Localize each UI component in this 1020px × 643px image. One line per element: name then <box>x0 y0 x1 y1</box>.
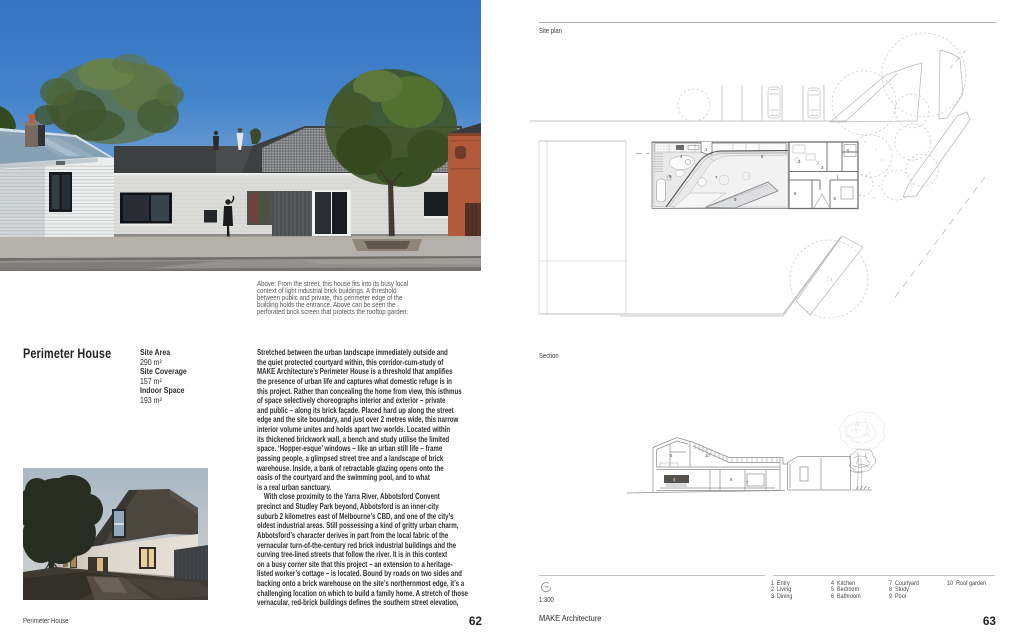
svg-text:8: 8 <box>730 477 733 482</box>
svg-text:10: 10 <box>705 453 710 458</box>
svg-text:5: 5 <box>670 453 673 458</box>
svg-text:7: 7 <box>746 480 749 485</box>
